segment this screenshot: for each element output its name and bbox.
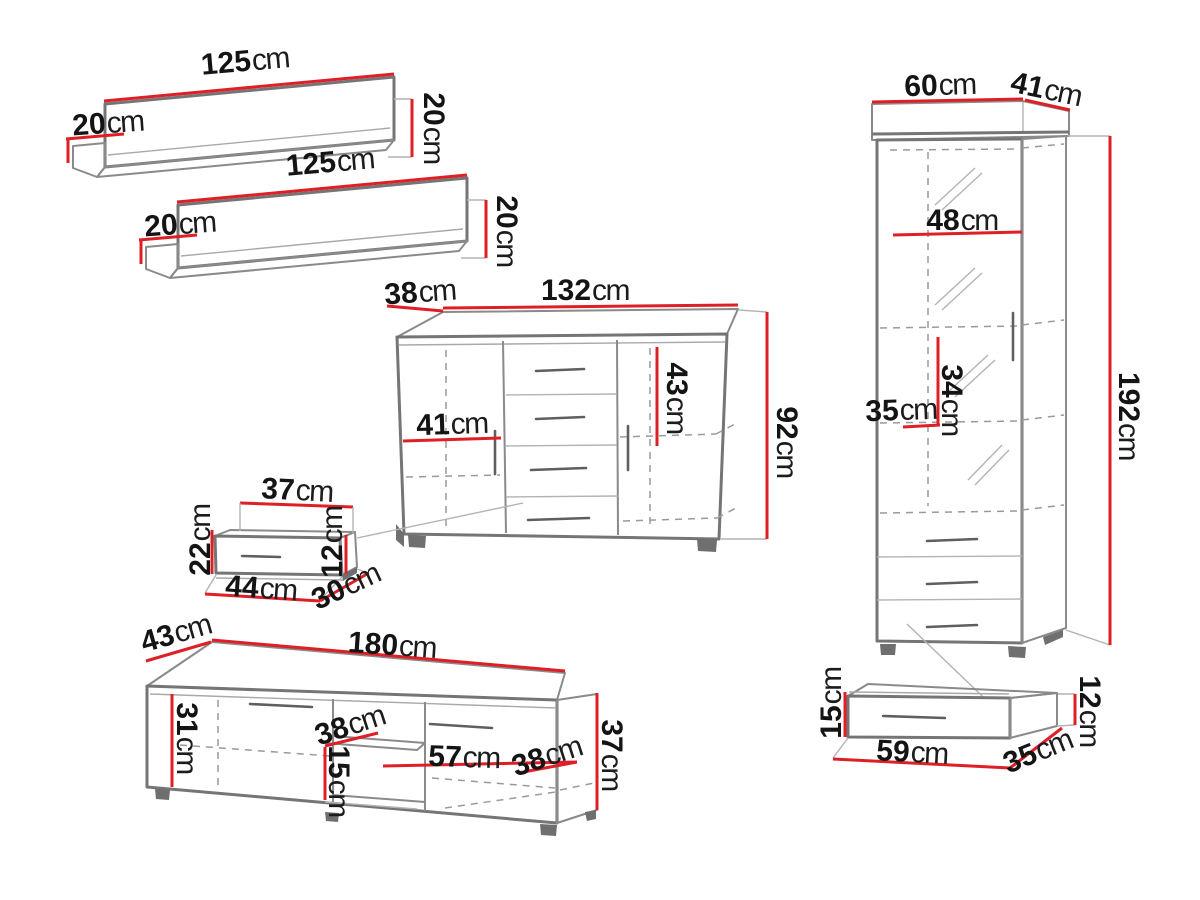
dim-value: 37 (261, 472, 296, 507)
dim-label-cabinet-inner-depth: 35cm (865, 395, 937, 427)
dim-unit: cm (336, 142, 376, 178)
dim-value: 37 (595, 719, 628, 752)
dim-unit: cm (899, 393, 937, 427)
dim-unit: cm (178, 206, 217, 242)
dim-value: 20 (143, 208, 179, 243)
dim-label-tv-shelf-gap-height: 15cm (323, 745, 353, 816)
dim-unit: cm (462, 741, 500, 775)
dim-value: 44 (224, 570, 260, 605)
dim-value: 15 (322, 745, 355, 778)
dim-label-sideboard-height: 92cm (771, 406, 801, 477)
dim-value: 41 (416, 408, 451, 442)
dim-unit: cm (592, 274, 629, 307)
dim-unit: cm (322, 780, 355, 817)
dim-unit: cm (450, 407, 488, 441)
dim-value: 34 (935, 364, 968, 397)
dim-unit: cm (770, 441, 803, 478)
dim-unit: cm (184, 504, 217, 541)
dim-label-drawer-width: 59cm (876, 736, 949, 770)
dim-label-cabinet-width: 60cm (904, 70, 976, 102)
dim-unit: cm (316, 506, 349, 543)
dim-label-tv-width: 180cm (347, 628, 437, 664)
dim-label-tv-right-door-width: 57cm (428, 742, 500, 774)
dim-unit: cm (295, 474, 334, 509)
dim-label-shelf1-depth: 20cm (71, 107, 144, 142)
dim-label-shelf1-height: 20cm (418, 92, 448, 163)
dim-label-cabinet-height: 192cm (1113, 372, 1143, 460)
dim-unit: cm (106, 105, 145, 141)
dim-value: 35 (865, 394, 900, 428)
dim-value: 38 (383, 276, 419, 311)
dim-unit: cm (398, 630, 437, 666)
dim-value: 12 (1073, 675, 1106, 708)
dim-value: 60 (904, 69, 939, 103)
dim-label-drawer-right-height: 12cm (1074, 675, 1104, 746)
tv-stand-drawing (146, 640, 597, 836)
dim-value: 22 (184, 542, 217, 575)
dim-value: 15 (815, 705, 848, 738)
dim-value: 92 (770, 406, 803, 439)
dim-unit: cm (1112, 423, 1145, 460)
dim-value: 20 (490, 195, 523, 228)
dim-value: 20 (417, 92, 450, 125)
dim-value: 59 (876, 734, 911, 769)
dim-label-shelf2-width: 125cm (285, 144, 375, 182)
dim-unit: cm (170, 737, 203, 774)
dim-label-wallbox-top-width: 37cm (261, 474, 334, 508)
diagram-canvas: 125cm 20cm 20cm 125cm 20cm 20cm 38cm 132… (0, 0, 1200, 900)
dim-label-wallbox-bottom-width: 44cm (224, 572, 297, 607)
dim-label-sideboard-inner-width: 41cm (416, 409, 488, 441)
dim-label-cabinet-inner-height: 34cm (936, 364, 966, 435)
dim-unit: cm (418, 274, 457, 310)
dim-label-wallbox-right-height: 12cm (318, 506, 348, 577)
dim-unit: cm (259, 572, 298, 608)
dim-unit: cm (938, 68, 976, 102)
dim-unit: cm (417, 127, 450, 164)
dim-label-sideboard-width: 132cm (541, 276, 629, 306)
dim-unit: cm (935, 399, 968, 436)
dim-unit: cm (961, 204, 998, 237)
dim-label-tv-height: 37cm (596, 719, 626, 790)
dim-value: 31 (170, 702, 203, 735)
dim-value: 57 (428, 740, 463, 774)
dim-unit: cm (815, 667, 848, 704)
dim-label-wallbox-left-height: 22cm (186, 504, 216, 575)
dim-label-shelf2-depth: 20cm (143, 208, 216, 243)
dim-label-sideboard-depth: 38cm (383, 276, 456, 311)
dim-value: 192 (1112, 372, 1145, 422)
dim-value: 180 (347, 626, 399, 662)
dim-label-tv-left-inner-height: 31cm (171, 702, 201, 773)
dim-label-cabinet-inner-width: 48cm (926, 206, 997, 236)
dim-label-shelf2-height: 20cm (491, 195, 521, 266)
dim-unit: cm (910, 736, 949, 771)
dim-value: 48 (926, 204, 959, 237)
dim-unit: cm (1073, 710, 1106, 747)
dim-label-sideboard-inner-height: 43cm (661, 362, 691, 433)
dim-unit: cm (251, 41, 291, 77)
dim-unit: cm (660, 397, 693, 434)
dim-unit: cm (490, 230, 523, 267)
display-cabinet-drawing (872, 99, 1110, 658)
dim-label-shelf1-width: 125cm (200, 43, 290, 81)
dim-value: 20 (71, 107, 107, 142)
dim-value: 43 (660, 362, 693, 395)
dim-value: 132 (541, 274, 591, 307)
dim-unit: cm (595, 754, 628, 791)
dim-value: 125 (200, 45, 253, 82)
dim-label-drawer-front-height: 15cm (817, 667, 847, 738)
dim-value: 125 (285, 146, 338, 183)
